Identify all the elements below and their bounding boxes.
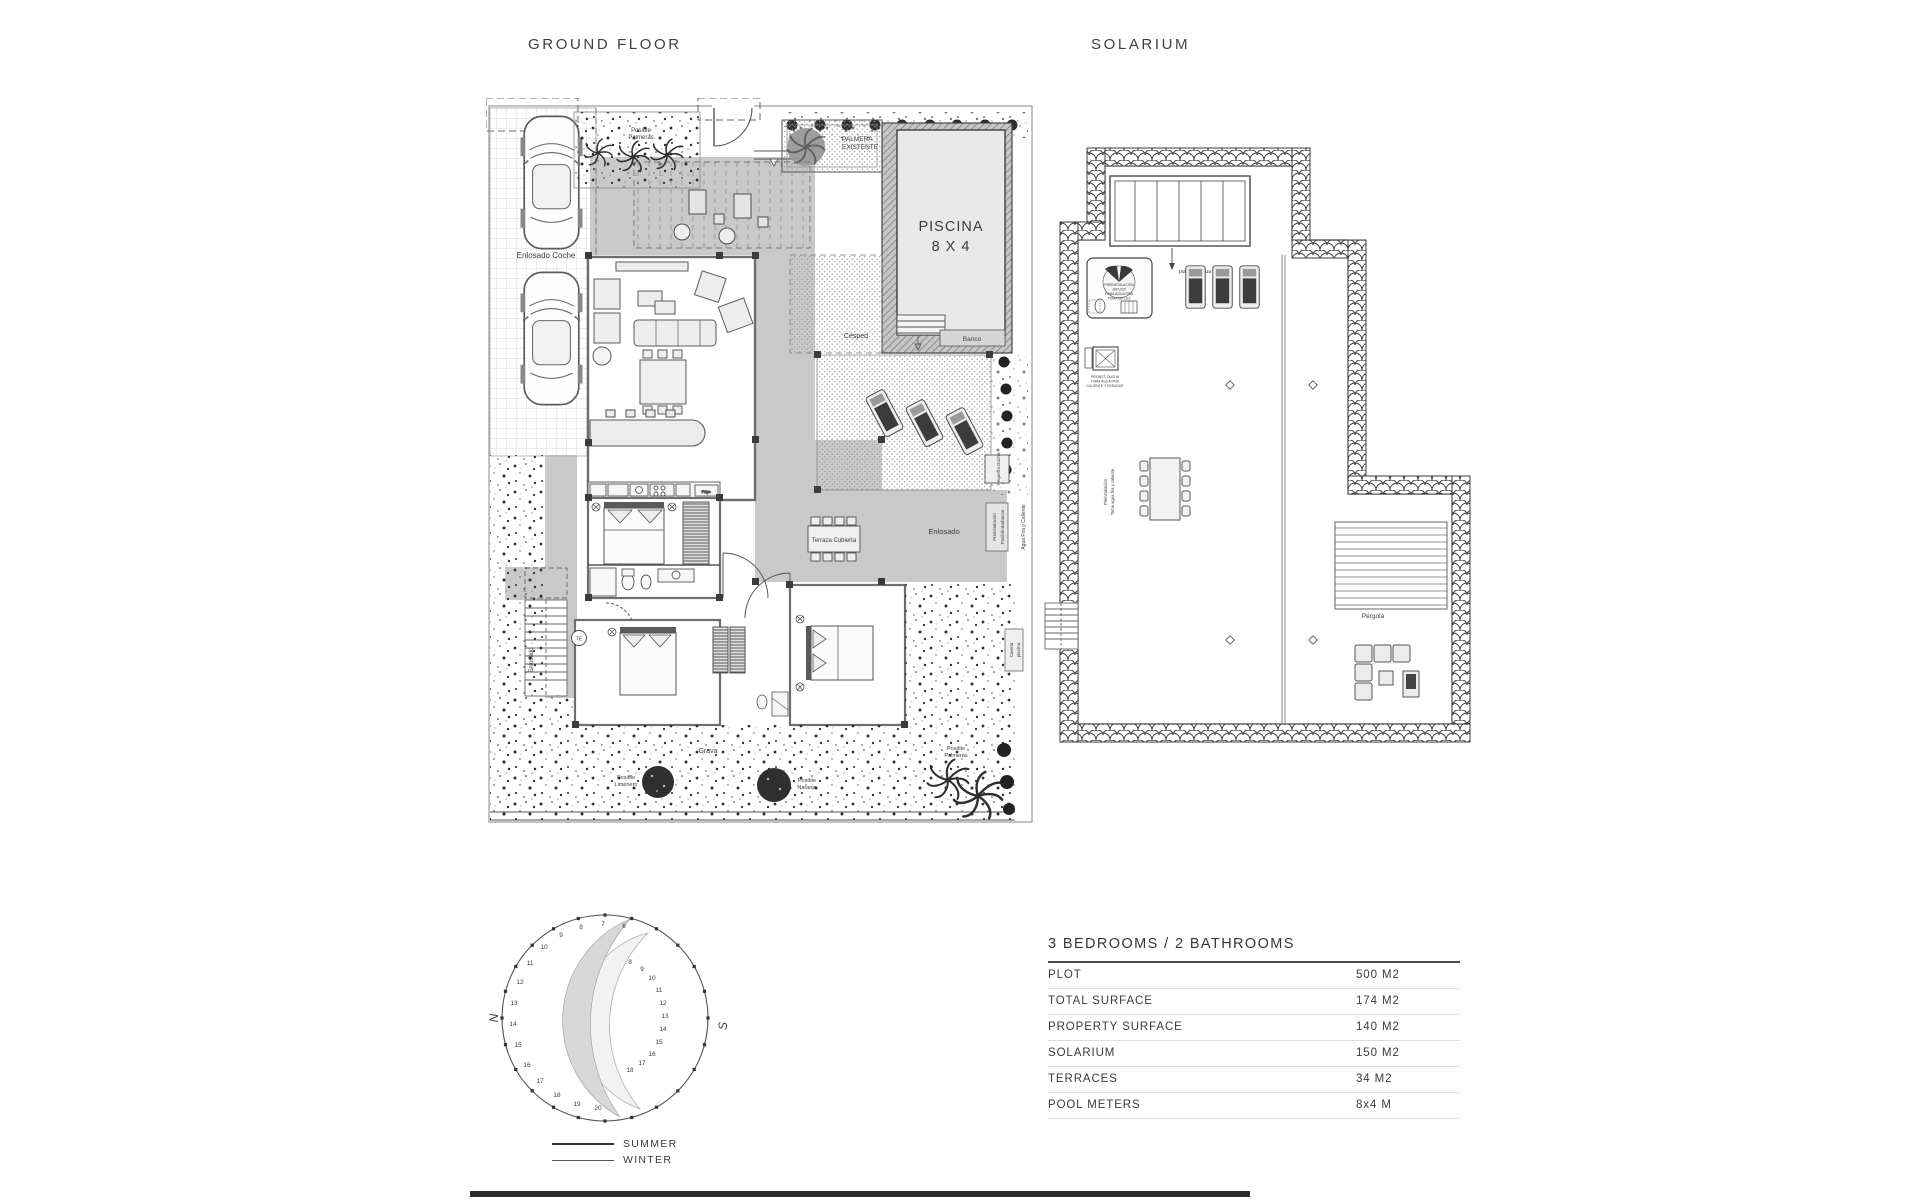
solarium-title: SOLARIUM: [1091, 36, 1190, 53]
svg-text:EXISTENTE: EXISTENTE: [842, 144, 879, 151]
svg-text:8 X 4: 8 X 4: [932, 239, 971, 255]
svg-text:Pequeña Ducha: Pequeña Ducha: [996, 452, 1001, 485]
living-room: [588, 257, 755, 500]
table-row: PROPERTY SURFACE140 M2: [1048, 1015, 1460, 1041]
pool: PISCINA 8 X 4 Banco: [882, 123, 1012, 353]
sun-legend: SUMMER WINTER: [552, 1136, 722, 1168]
solarium-floor: [1078, 166, 1452, 724]
svg-text:Posible Barbacoa: Posible Barbacoa: [1000, 509, 1005, 544]
car-2: [521, 272, 583, 404]
svg-text:8: 8: [579, 924, 583, 931]
spec-table: 3 BEDROOMS / 2 BATHROOMS PLOT500 M2 TOTA…: [1048, 936, 1460, 1119]
svg-text:Palmeras: Palmeras: [628, 135, 653, 141]
winter-line-icon: [552, 1160, 614, 1161]
sun-lounger: [1240, 266, 1259, 308]
svg-text:12: 12: [516, 979, 524, 986]
floorplan-page: GROUND FLOOR SOLARIUM Enlosado Coche: [0, 0, 1920, 1200]
palmera-existente-label: PALMERA: [842, 136, 873, 143]
svg-text:Preinstalación: Preinstalación: [1103, 478, 1108, 505]
summer-line-icon: [552, 1143, 614, 1145]
svg-text:Palmeras: Palmeras: [944, 753, 967, 759]
bathroom-2: [757, 692, 788, 716]
svg-text:Caseta: Caseta: [1009, 642, 1014, 657]
palmera-existente: PALMERA EXISTENTE: [782, 120, 882, 172]
summer-label: SUMMER: [623, 1138, 677, 1150]
svg-text:15: 15: [514, 1042, 522, 1049]
svg-text:Posible: Posible: [798, 778, 816, 784]
svg-text:16: 16: [648, 1051, 656, 1058]
pequena-ducha: Pequeña Ducha: [985, 452, 1009, 485]
table-row: TOTAL SURFACE174 M2: [1048, 989, 1460, 1015]
jacuzzi: PREINSTALACION JACUZZI TOMA AGUA FRIA TO…: [1087, 258, 1152, 318]
svg-text:18: 18: [626, 1067, 634, 1074]
sofa: [634, 320, 716, 346]
table-row: SOLARIUM150 M2: [1048, 1041, 1460, 1067]
table-row: PLOT500 M2: [1048, 963, 1460, 989]
svg-text:Posible: Posible: [617, 775, 635, 781]
posible-palmeras-label: Posible: [631, 128, 651, 134]
louver-door: [713, 627, 728, 673]
pergola-label: Pérgola: [1362, 613, 1385, 620]
svg-text:12: 12: [659, 1000, 667, 1007]
sun-lounger: [1186, 266, 1205, 308]
svg-text:11: 11: [656, 987, 663, 994]
enlosado-terrace-label: Enlosado: [928, 527, 959, 536]
svg-text:18: 18: [553, 1092, 561, 1099]
svg-text:17: 17: [536, 1078, 544, 1085]
kitchen-counter: Frigo: [588, 482, 720, 498]
tree-limonero-icon: [642, 766, 674, 798]
table-row: POOL METERS8x4 M: [1048, 1093, 1460, 1119]
svg-text:16: 16: [523, 1062, 531, 1069]
svg-text:17: 17: [638, 1060, 646, 1067]
cesped-label: Césped: [844, 333, 868, 340]
south-label: S: [716, 1022, 730, 1030]
svg-text:PREINST. DUCHA: PREINST. DUCHA: [1091, 375, 1120, 379]
sideboard: [616, 262, 688, 271]
svg-text:9: 9: [640, 966, 644, 973]
bedroom-1: [588, 498, 720, 598]
tree-naranjo-icon: [757, 768, 791, 802]
bedroom-2: [790, 585, 905, 725]
svg-text:13: 13: [661, 1013, 669, 1020]
svg-text:Naranjo: Naranjo: [797, 785, 816, 791]
ground-floor-plan: Enlosado Coche Posible Palmeras: [486, 98, 1046, 828]
spec-title: 3 BEDROOMS / 2 BATHROOMS: [1048, 936, 1460, 963]
svg-text:JACUZZI: JACUZZI: [1112, 288, 1126, 292]
svg-text:10: 10: [540, 944, 548, 951]
wardrobe: [683, 502, 709, 564]
svg-text:7: 7: [601, 921, 605, 928]
dining-table: [640, 350, 686, 414]
svg-text:6: 6: [622, 923, 626, 930]
svg-text:PREINSTALACION: PREINSTALACION: [1104, 283, 1134, 287]
grava-label: Grava: [698, 748, 717, 755]
svg-text:20: 20: [594, 1105, 602, 1112]
svg-text:9: 9: [559, 932, 563, 939]
north-label: N: [487, 1013, 501, 1022]
terraza-cubierta-label: Terraza Cubierta: [812, 538, 857, 544]
banco-label: Banco: [963, 336, 982, 343]
winter-label: WINTER: [623, 1154, 672, 1166]
louver-door: [730, 627, 745, 673]
table-row: TERRACES34 M2: [1048, 1067, 1460, 1093]
svg-text:Toma agua fria y caliente: Toma agua fria y caliente: [1110, 468, 1115, 515]
palm-bed: Posible Palmeras: [574, 112, 700, 188]
svg-text:Posible: Posible: [947, 746, 965, 752]
shower: PREINST. DUCHA TOMA AGUA FRIA CALIENTE Y…: [1085, 347, 1124, 388]
solarium-stairs: [1045, 603, 1078, 649]
solarium-plan: punto de agua PREINSTALACION JACUZZI TOM…: [1040, 140, 1475, 800]
sun-lounger: [1213, 266, 1232, 308]
page-footer-bar: [470, 1191, 1250, 1197]
svg-text:14: 14: [509, 1021, 517, 1028]
svg-text:piscina: piscina: [1016, 642, 1021, 657]
svg-text:13: 13: [510, 1000, 518, 1007]
frigo-label: Frigo: [701, 489, 711, 494]
car-1: [521, 116, 583, 248]
svg-text:TE: TE: [575, 637, 582, 643]
svg-text:11: 11: [527, 960, 534, 967]
svg-text:TOMA DE LUZ: TOMA DE LUZ: [1108, 297, 1131, 301]
piscina-label: PISCINA: [918, 219, 983, 235]
bedroom-3: [575, 620, 745, 725]
svg-text:TOMA AGUA FRIA: TOMA AGUA FRIA: [1105, 292, 1134, 296]
svg-text:CALIENTE Y DESAGUE: CALIENTE Y DESAGUE: [1086, 384, 1124, 388]
enlosado-coche-label: Enlosado Coche: [517, 251, 576, 260]
agua-fria-label: Agua Fria y Caliente: [1021, 504, 1027, 550]
svg-text:TOMA AGUA FRIA: TOMA AGUA FRIA: [1091, 380, 1120, 384]
svg-text:14: 14: [659, 1026, 667, 1033]
lawn-pergola: Césped: [790, 255, 882, 353]
svg-text:15: 15: [655, 1039, 663, 1046]
svg-text:8: 8: [628, 959, 632, 966]
svg-text:19: 19: [573, 1101, 581, 1108]
pergola: Pérgola: [1335, 522, 1447, 620]
enlosado-left-label: Enlosado: [529, 647, 535, 673]
svg-text:Limonero: Limonero: [615, 782, 638, 788]
winter-hour-labels: 89101112131415161718: [626, 959, 669, 1074]
svg-text:10: 10: [648, 975, 656, 982]
ground-floor-title: GROUND FLOOR: [528, 36, 682, 53]
svg-text:Preinstalación: Preinstalación: [992, 513, 997, 541]
